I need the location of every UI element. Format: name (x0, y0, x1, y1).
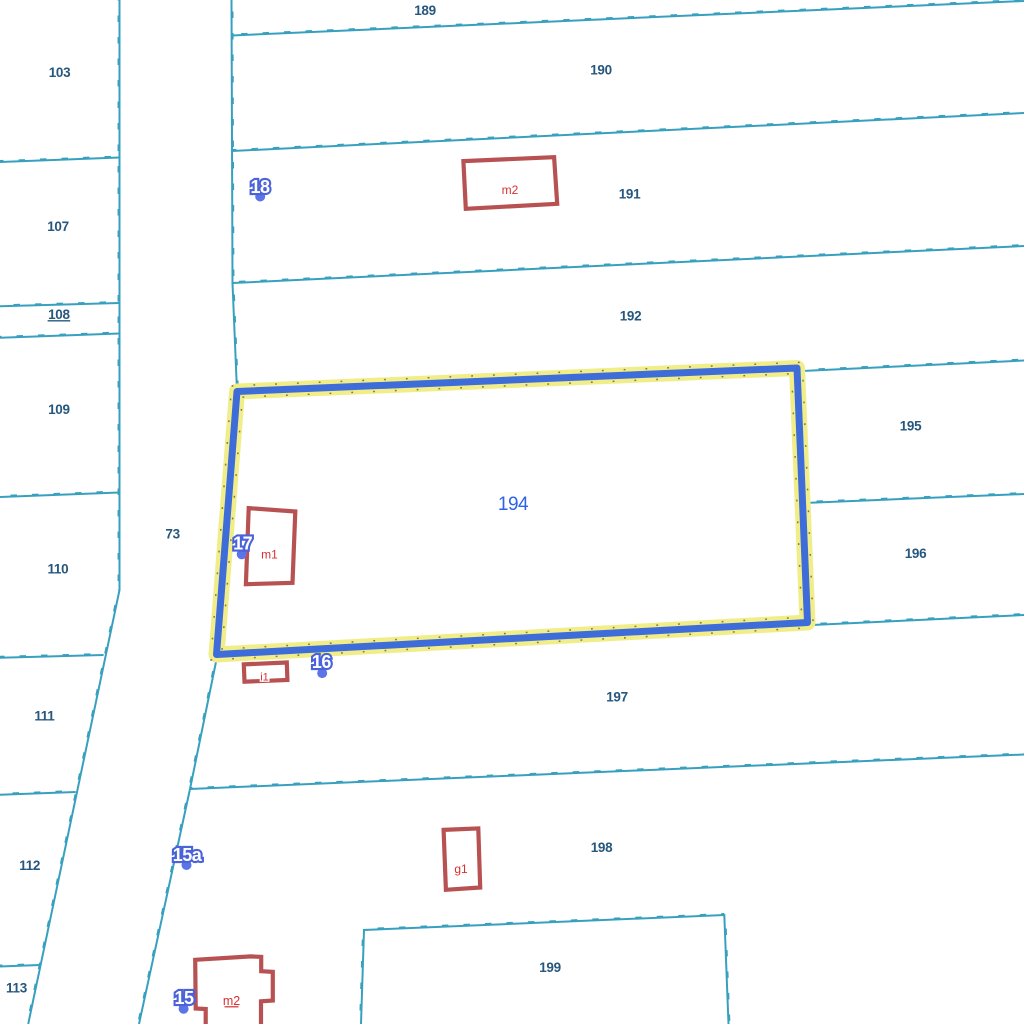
svg-text:15: 15 (174, 988, 194, 1008)
svg-text:112: 112 (19, 858, 40, 873)
svg-text:103: 103 (49, 65, 71, 80)
svg-text:194: 194 (498, 494, 529, 515)
svg-text:108: 108 (48, 307, 70, 322)
svg-text:107: 107 (47, 219, 69, 234)
svg-text:192: 192 (620, 309, 642, 324)
svg-text:16: 16 (312, 652, 332, 672)
svg-text:199: 199 (539, 960, 561, 975)
svg-text:111: 111 (34, 709, 55, 724)
svg-text:195: 195 (900, 419, 922, 434)
svg-text:197: 197 (606, 690, 628, 705)
svg-text:73: 73 (165, 526, 180, 541)
svg-text:i1: i1 (260, 672, 269, 684)
svg-text:m1: m1 (261, 548, 278, 562)
svg-text:113: 113 (6, 980, 28, 995)
svg-text:15a: 15a (173, 845, 203, 865)
svg-text:17: 17 (233, 534, 253, 554)
svg-text:110: 110 (47, 561, 68, 576)
svg-text:190: 190 (590, 63, 612, 78)
svg-text:109: 109 (48, 402, 70, 417)
svg-text:196: 196 (905, 546, 927, 561)
svg-text:198: 198 (591, 840, 613, 855)
svg-text:g1: g1 (454, 862, 468, 876)
svg-text:191: 191 (619, 187, 641, 202)
svg-text:189: 189 (414, 3, 436, 18)
svg-text:m2: m2 (223, 994, 240, 1008)
svg-text:18: 18 (250, 177, 270, 197)
svg-text:m2: m2 (502, 183, 519, 197)
